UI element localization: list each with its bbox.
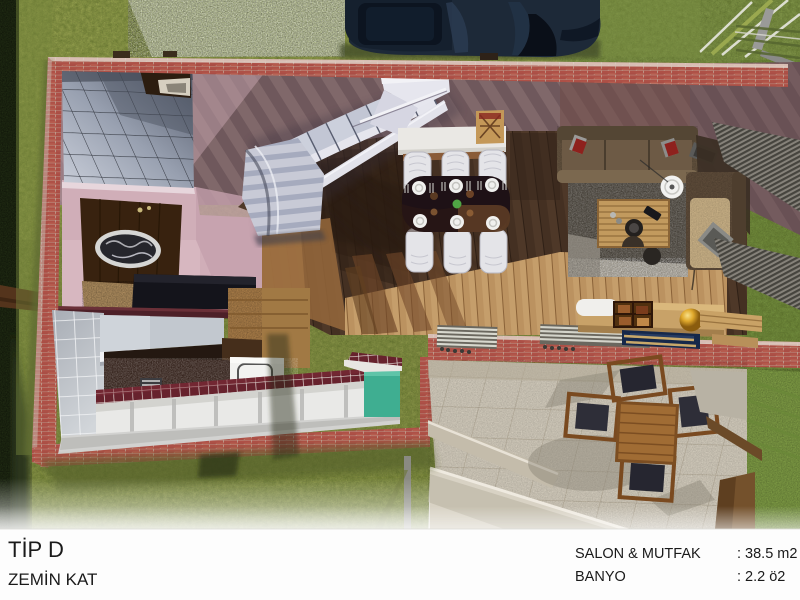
- svg-text:BANYO: BANYO: [575, 569, 626, 585]
- svg-text:: 2.2 ö2: : 2.2 ö2: [737, 569, 785, 585]
- svg-text:TİP D: TİP D: [8, 537, 64, 562]
- svg-text:SALON & MUTFAK: SALON & MUTFAK: [575, 546, 701, 562]
- svg-text:ZEMİN KAT: ZEMİN KAT: [8, 570, 97, 589]
- svg-text:: 38.5 m2: : 38.5 m2: [737, 546, 797, 562]
